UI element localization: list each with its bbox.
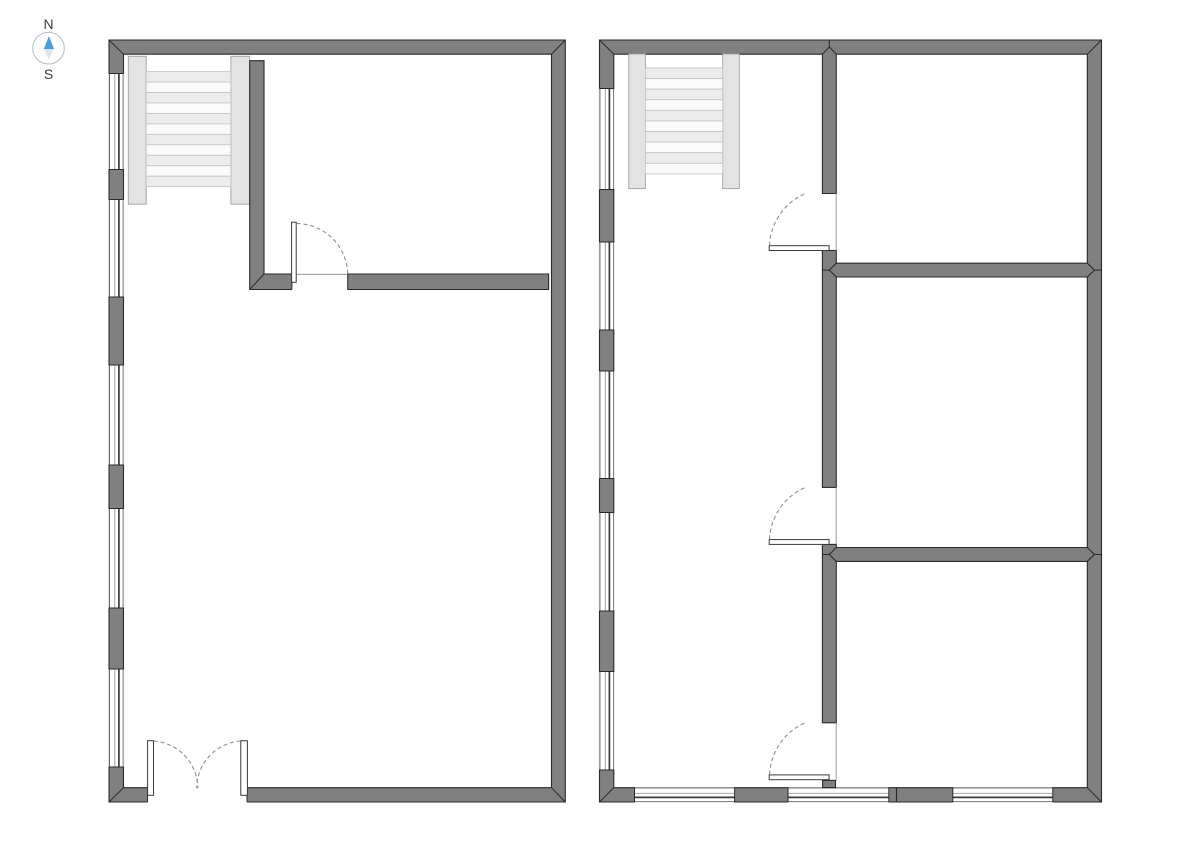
svg-text:N: N xyxy=(43,16,53,32)
svg-text:S: S xyxy=(44,66,53,82)
